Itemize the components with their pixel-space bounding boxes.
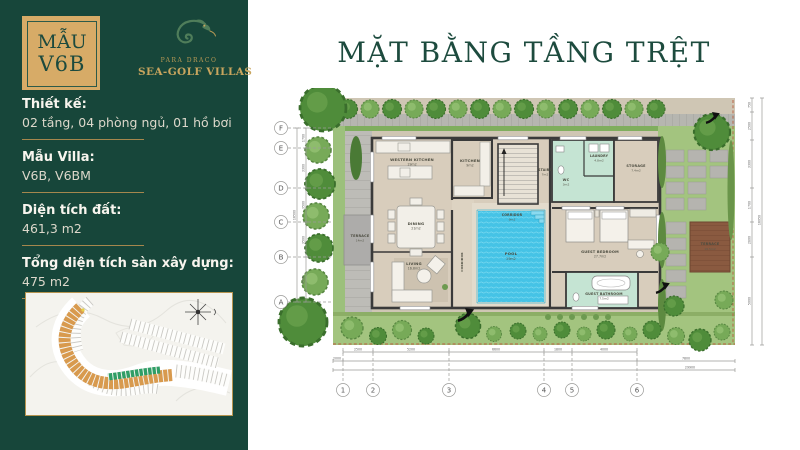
logo-brand-text: PARA DRACO bbox=[138, 57, 240, 64]
room-label-western-kitchen: WESTERN KITCHEN bbox=[390, 157, 434, 162]
spec-label: Mẫu Villa: bbox=[22, 150, 232, 165]
wc-laundry-rooms bbox=[552, 140, 614, 202]
site-map-drawing bbox=[26, 293, 232, 415]
spec-label: Thiết kế: bbox=[22, 97, 232, 112]
model-badge-code: V6B bbox=[39, 53, 86, 76]
svg-text:9m2: 9m2 bbox=[509, 218, 516, 222]
svg-text:1700: 1700 bbox=[302, 134, 306, 142]
divider bbox=[22, 139, 144, 140]
spec-item-villa-model: Mẫu Villa: V6B, V6BM bbox=[22, 150, 232, 193]
svg-text:7800: 7800 bbox=[682, 357, 690, 361]
svg-text:5200: 5200 bbox=[407, 348, 415, 352]
svg-text:A: A bbox=[279, 299, 284, 307]
room-label-laundry: LAUNDRY bbox=[590, 154, 609, 158]
svg-text:2500: 2500 bbox=[748, 122, 752, 130]
spec-value: 461,3 m2 bbox=[22, 221, 232, 236]
brochure-slide: MẪU V6B PARA DRACO SEA-GOLF VILLAS Thiết… bbox=[0, 0, 800, 450]
svg-text:1: 1 bbox=[341, 387, 345, 395]
spec-item-design: Thiết kế: 02 tầng, 04 phòng ngủ, 01 hồ b… bbox=[22, 97, 232, 140]
spec-label: Diện tích đất: bbox=[22, 203, 232, 218]
svg-text:7.4m2: 7.4m2 bbox=[631, 169, 641, 173]
svg-text:29m2: 29m2 bbox=[506, 257, 516, 261]
svg-text:14m2: 14m2 bbox=[356, 239, 365, 243]
logo-project-name: SEA-GOLF VILLAS bbox=[138, 66, 240, 78]
divider bbox=[22, 192, 144, 193]
room-label-corridor-left: CORRIDOR bbox=[460, 252, 464, 272]
svg-text:2: 2 bbox=[371, 387, 375, 395]
svg-text:4000: 4000 bbox=[600, 348, 608, 352]
svg-text:3300: 3300 bbox=[302, 164, 306, 172]
divider bbox=[22, 245, 144, 246]
svg-text:9m2: 9m2 bbox=[466, 164, 473, 168]
model-badge: MẪU V6B bbox=[22, 16, 100, 90]
svg-text:4: 4 bbox=[542, 387, 547, 395]
svg-text:3: 3 bbox=[447, 387, 451, 395]
svg-text:C: C bbox=[279, 219, 284, 227]
compass-icon bbox=[185, 299, 216, 325]
svg-text:3m2: 3m2 bbox=[563, 183, 570, 187]
floor-plan-drawing: WESTERN KITCHEN 19m2 KITCHEN 9m2 STAIRS … bbox=[248, 88, 800, 410]
room-label-guest-bedroom: GUEST BEDROOM bbox=[581, 250, 619, 254]
svg-text:16050: 16050 bbox=[758, 215, 762, 225]
site-map bbox=[25, 292, 233, 416]
svg-text:16.8m2: 16.8m2 bbox=[408, 267, 421, 271]
svg-text:3300: 3300 bbox=[748, 160, 752, 168]
svg-text:6600: 6600 bbox=[492, 348, 500, 352]
svg-text:750: 750 bbox=[748, 102, 752, 108]
svg-text:1700: 1700 bbox=[748, 201, 752, 209]
floor-plan: WESTERN KITCHEN 19m2 KITCHEN 9m2 STAIRS … bbox=[248, 88, 800, 410]
svg-text:4500: 4500 bbox=[302, 276, 306, 284]
room-label-terrace-wood: TERRACE bbox=[701, 242, 720, 246]
svg-text:1800: 1800 bbox=[554, 348, 562, 352]
svg-text:2800: 2800 bbox=[748, 236, 752, 244]
svg-text:19m2: 19m2 bbox=[407, 163, 417, 167]
spec-list: Thiết kế: 02 tầng, 04 phòng ngủ, 01 hồ b… bbox=[22, 97, 232, 309]
svg-text:3500: 3500 bbox=[302, 201, 306, 209]
svg-text:3500: 3500 bbox=[302, 236, 306, 244]
svg-text:D: D bbox=[278, 185, 283, 193]
guest-bathroom bbox=[566, 272, 638, 308]
model-badge-frame: MẪU V6B bbox=[27, 21, 97, 87]
project-logo: PARA DRACO SEA-GOLF VILLAS bbox=[138, 18, 240, 78]
svg-text:5: 5 bbox=[570, 387, 574, 395]
svg-text:29900: 29900 bbox=[685, 366, 695, 370]
model-badge-word: MẪU bbox=[37, 32, 86, 53]
spec-value: 475 m2 bbox=[22, 274, 232, 289]
sidebar: MẪU V6B PARA DRACO SEA-GOLF VILLAS Thiết… bbox=[0, 0, 248, 450]
room-label-guest-bathroom: GUEST BATHROOM bbox=[585, 292, 622, 296]
room-label-storage: STORAGE bbox=[626, 164, 646, 168]
spec-label: Tổng diện tích sàn xây dựng: bbox=[22, 256, 232, 271]
svg-text:E: E bbox=[279, 145, 283, 153]
svg-text:2500: 2500 bbox=[354, 348, 362, 352]
room-label-living: LIVING bbox=[406, 261, 422, 266]
svg-text:6: 6 bbox=[635, 387, 640, 395]
svg-text:F: F bbox=[279, 125, 283, 133]
svg-text:16500: 16500 bbox=[293, 210, 297, 220]
room-label-pool: POOL bbox=[505, 251, 518, 256]
staircase bbox=[498, 144, 538, 204]
svg-text:7m2: 7m2 bbox=[542, 173, 549, 177]
svg-text:7.5m2: 7.5m2 bbox=[599, 297, 609, 301]
svg-text:19.5m2: 19.5m2 bbox=[704, 247, 716, 251]
room-label-terrace-left: TERRACE bbox=[351, 234, 370, 238]
spec-item-land-area: Diện tích đất: 461,3 m2 bbox=[22, 203, 232, 246]
room-label-stairs: STAIRS bbox=[538, 168, 552, 172]
spec-value: 02 tầng, 04 phòng ngủ, 01 hồ bơi bbox=[22, 115, 232, 130]
svg-text:B: B bbox=[279, 254, 284, 262]
svg-text:27.7m2: 27.7m2 bbox=[594, 255, 606, 259]
room-label-corridor-top: CORRIDOR bbox=[502, 213, 523, 217]
svg-text:21m2: 21m2 bbox=[411, 227, 421, 231]
room-label-wc: WC bbox=[563, 178, 570, 182]
dragon-logo-icon bbox=[159, 18, 219, 52]
spec-value: V6B, V6BM bbox=[22, 168, 232, 183]
svg-text:2000: 2000 bbox=[333, 357, 341, 361]
room-label-dining: DINING bbox=[408, 221, 425, 226]
room-label-kitchen: KITCHEN bbox=[460, 158, 480, 163]
page-title: MẶT BẰNG TẦNG TRỆT bbox=[248, 36, 800, 69]
svg-text:4.8m2: 4.8m2 bbox=[594, 159, 604, 163]
svg-text:5000: 5000 bbox=[748, 297, 752, 305]
